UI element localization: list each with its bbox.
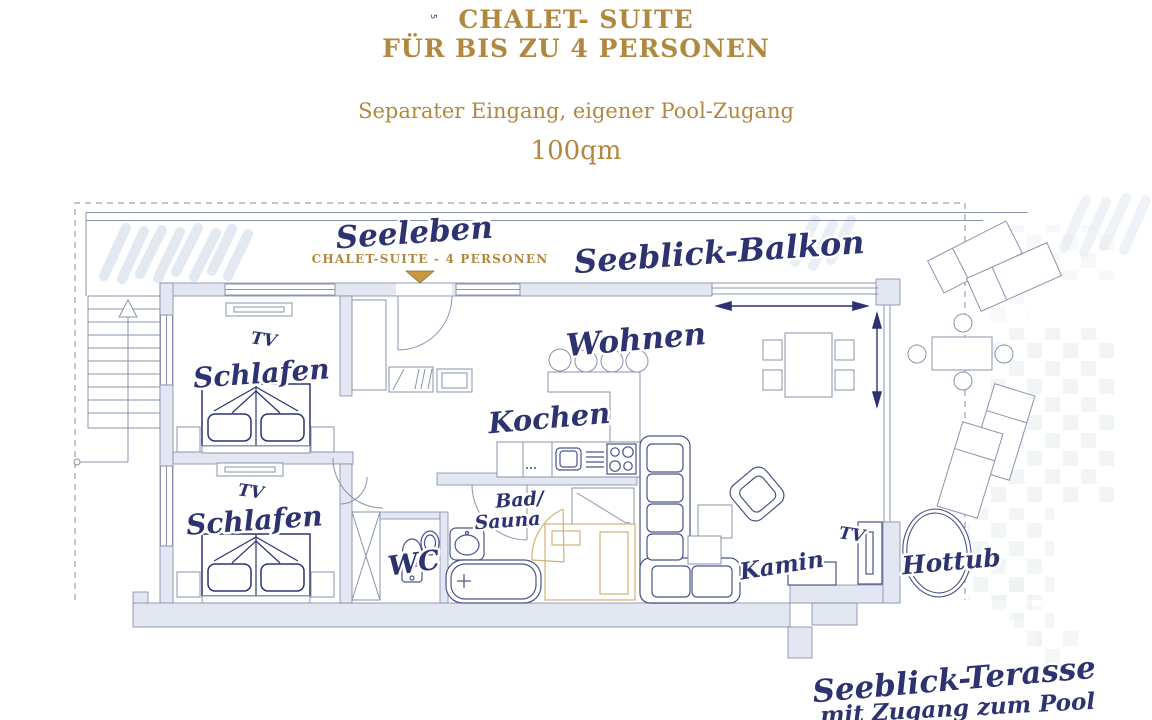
entry-closet <box>352 300 386 390</box>
balcony-sliding-door <box>712 283 878 296</box>
bedroom1-tv-label: TV <box>250 328 280 352</box>
nightstand <box>177 572 200 597</box>
bed-double-2 <box>202 534 310 603</box>
right-sliding-door <box>884 305 890 522</box>
nightstand <box>311 427 334 452</box>
dining-table <box>785 333 832 397</box>
dining-set <box>763 333 854 397</box>
bath-label-line2: Sauna <box>474 508 541 535</box>
armchair <box>726 463 788 525</box>
hall-sideboard <box>389 367 472 392</box>
nightstand <box>177 427 200 452</box>
staircase <box>74 296 160 465</box>
living-tv-label: TV <box>838 523 868 547</box>
balcony-label: Seeblick-Balkon <box>573 223 866 281</box>
floorplan-page: CHALET- SUITE FÜR BIS ZU 4 PERSONEN Sepa… <box>0 0 1152 720</box>
wc-label: WC <box>386 545 442 583</box>
floorplan-svg: Seeleben CHALET-SUITE - 4 PERSONEN Seebl… <box>0 0 1152 720</box>
nightstand <box>311 572 334 597</box>
stove <box>607 444 636 474</box>
unit-name-label: Seeleben <box>335 210 494 257</box>
side-table <box>698 505 732 538</box>
bathtub <box>446 560 541 603</box>
kitchen-label: Kochen <box>486 396 612 441</box>
bed-double-1 <box>202 384 310 453</box>
living-label: Wohnen <box>565 316 708 364</box>
entrance-marker <box>406 271 434 283</box>
bedroom2-tv-label: TV <box>237 480 267 504</box>
wardrobe-x <box>352 512 380 600</box>
unit-subtitle-label: CHALET-SUITE - 4 PERSONEN <box>312 252 549 266</box>
side-table <box>688 536 721 564</box>
